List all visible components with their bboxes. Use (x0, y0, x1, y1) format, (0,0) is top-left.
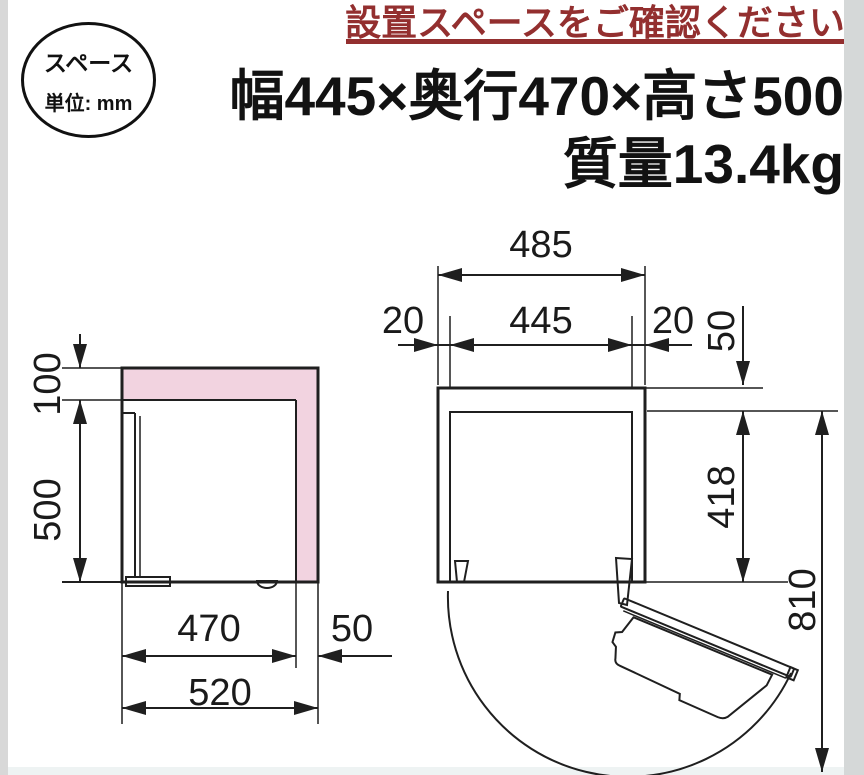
page-title: 設置スペースをご確認ください (346, 0, 844, 44)
dim-label-right-clearance: 20 (652, 300, 694, 342)
side-horizontal-dimensions: 470 50 520 (122, 582, 392, 724)
left-edge-strip (0, 0, 8, 775)
top-width-dimensions: 485 445 20 20 (382, 224, 694, 388)
dim-label-body-depth: 470 (177, 608, 240, 650)
left-hinge (455, 561, 468, 582)
right-edge-strip (844, 0, 864, 775)
side-vertical-dimensions: 100 500 (27, 334, 122, 582)
door-swing (448, 591, 798, 775)
dim-label-body-height: 500 (27, 478, 69, 541)
dim-label-total-depth: 520 (188, 672, 251, 714)
bottom-edge-strip (8, 767, 844, 775)
rear-foot (257, 581, 277, 588)
front-foot (126, 577, 170, 586)
page-title-text: 設置スペースをご確認ください (345, 0, 845, 46)
side-top-clearance-area (122, 368, 318, 400)
side-view-diagram: 100 500 470 50 520 (27, 334, 392, 724)
open-door (596, 598, 798, 738)
dim-label-top-rear-clearance: 50 (701, 310, 743, 352)
dim-label-door-open-depth: 810 (782, 568, 824, 631)
appliance-side-outline (123, 413, 277, 588)
spec-text: 幅445×奥行470×高さ500 質量13.4kg (229, 62, 844, 198)
appliance-top-outline (450, 412, 632, 582)
dim-label-top-body-depth: 418 (701, 465, 743, 528)
dim-label-body-width: 445 (509, 300, 572, 342)
dim-label-left-clearance: 20 (382, 300, 424, 342)
side-rear-clearance-area (296, 400, 318, 582)
dim-label-top-clearance: 100 (27, 352, 69, 415)
top-view-diagram: 485 445 20 20 50 418 810 (382, 224, 838, 775)
dim-label-rear-clearance: 50 (331, 608, 373, 650)
unit-badge-label: スペース (44, 44, 133, 78)
dim-label-total-width: 485 (509, 224, 572, 266)
unit-badge: スペース 単位: mm (21, 22, 156, 138)
door-swing-arc (448, 591, 791, 775)
side-outer-box (122, 368, 318, 582)
right-hinge (616, 558, 632, 605)
top-clearance-frame (438, 388, 645, 582)
spec-weight: 質量13.4kg (229, 130, 844, 198)
unit-badge-unit: 単位: mm (45, 87, 133, 116)
installation-space-sheet: 設置スペースをご確認ください スペース 単位: mm 幅445×奥行470×高さ… (0, 0, 864, 775)
top-depth-dimensions: 50 418 810 (645, 306, 838, 772)
spec-dimensions: 幅445×奥行470×高さ500 (229, 62, 844, 130)
